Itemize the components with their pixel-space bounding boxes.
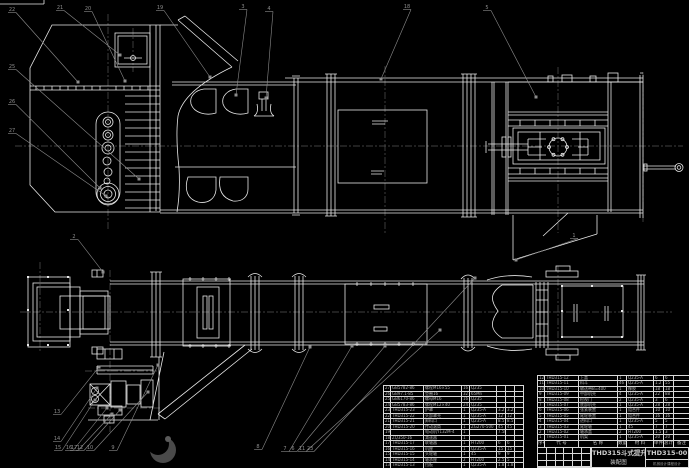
boot-section-plan [487, 266, 623, 360]
leader-line [61, 367, 99, 415]
leader-dot [235, 94, 238, 97]
leader-line [297, 346, 385, 452]
balloon-label: 15 [55, 445, 61, 451]
leader-dot [77, 81, 80, 84]
balloon-label: 3 [241, 4, 244, 10]
cad-drawing-canvas: 2221201934185252627211314151617121098761… [0, 0, 689, 468]
balloon-label: 1 [572, 233, 575, 239]
bom-cell: 1.8 [497, 463, 506, 468]
walkway [30, 86, 160, 90]
take-up-screw-rod [643, 166, 676, 169]
drive-unit-plan [88, 349, 164, 423]
leader-line [164, 11, 210, 78]
bolt-fitting [254, 92, 274, 116]
leader-dot [105, 195, 108, 198]
bom-cell: 13 [384, 463, 391, 468]
bom-cell: 1.8 [506, 463, 515, 468]
inspection-door-plan-2 [345, 282, 427, 346]
leader-dot [94, 399, 97, 402]
leader-line [92, 12, 125, 82]
balloon-label: 4 [267, 6, 270, 12]
signature-cell [582, 461, 591, 467]
balloon-label: 11 [299, 446, 305, 452]
boot-outlet-chute [513, 213, 597, 260]
bom-table-right: 12THD315-12上盖1Q235-A6611THD315-11料斗46Q23… [537, 375, 689, 441]
bom-cell: 挡板 [424, 463, 462, 468]
ink-stamp [147, 433, 176, 463]
balloon-label: 13 [54, 409, 60, 415]
leader-dot [96, 387, 99, 390]
bom-cell: 1 [462, 463, 470, 468]
upper-view [0, 0, 683, 260]
leader-dot [157, 364, 160, 367]
leader-dot [515, 259, 518, 262]
balloon-label: 14 [54, 436, 60, 442]
casing-plan [110, 281, 644, 345]
signature-grid [538, 448, 591, 467]
leader-dot [309, 346, 312, 349]
leader-dot [384, 345, 387, 348]
leader-line [289, 346, 352, 452]
leader-dot [351, 345, 354, 348]
drawing-number-cell: THD315-00 机械设计课程设计 [646, 448, 688, 467]
leader-line [262, 347, 310, 450]
balloon-label: 27 [9, 128, 15, 134]
leader-dot [124, 80, 127, 83]
leader-line [62, 400, 95, 451]
balloon-label: 22 [9, 7, 15, 13]
balloon-label: 2 [72, 234, 75, 240]
leader-dot [474, 277, 477, 280]
balloon-label: 6 [291, 446, 294, 452]
leader-line [16, 13, 78, 83]
leader-line [516, 239, 578, 261]
leader-line [64, 11, 120, 56]
leader-dot [102, 271, 105, 274]
drawing-footer-note: 机械设计课程设计 [646, 460, 688, 468]
leader-dot [106, 407, 109, 410]
bom-row: 13THD315-13挡板1Q235-A1.81.8 [384, 463, 524, 468]
section-flanges [292, 74, 477, 217]
inspection-door-elevation [338, 110, 427, 183]
signature-cell [573, 461, 582, 467]
leader-line [61, 388, 97, 442]
balloon-label: 5 [485, 5, 488, 11]
balloon-label: 8 [256, 444, 259, 450]
drawing-title: THD315斗式提升机 [592, 448, 645, 459]
casing-lines [160, 25, 643, 213]
leader-dot [99, 187, 102, 190]
balloon-label: 26 [9, 99, 15, 105]
balloon-label: 25 [9, 64, 15, 70]
leader-dot [209, 76, 212, 79]
signature-cell [564, 461, 573, 467]
leader-dot [119, 409, 122, 412]
signature-cell [556, 461, 565, 467]
balloon-label: 19 [157, 5, 163, 11]
balloon-label: 9 [111, 445, 114, 451]
leader-line [491, 11, 536, 98]
bom-cell: Q235-A [470, 463, 497, 468]
bom-cell: THD315-13 [391, 463, 424, 468]
bom-table-left: 27GB5782-86螺栓M16×5516Q23526GB97.1-85垫圈16… [383, 385, 524, 468]
balloon-label: 10 [87, 445, 93, 451]
inspection-door-plan-1 [183, 277, 231, 348]
signature-cell [547, 461, 556, 467]
sheet-frame-corner [0, 0, 44, 4]
centerlines [15, 14, 683, 432]
balloon-label: 23 [307, 446, 313, 452]
drawing-title-cell: THD315斗式提升机 装配图 [591, 448, 646, 467]
leader-dot [265, 97, 268, 100]
leader-dot [380, 78, 383, 81]
balloon-label: 21 [57, 5, 63, 11]
title-block: THD315斗式提升机 装配图 THD315-00 机械设计课程设计 [537, 447, 689, 468]
leader-dot [111, 413, 114, 416]
balloon-label: 20 [85, 6, 91, 12]
balloon-label: 12 [77, 445, 83, 451]
leader-dot [98, 366, 101, 369]
leader-dot [535, 96, 538, 99]
drawing-subtitle: 装配图 [592, 459, 645, 468]
boot-section [486, 73, 683, 260]
leader-dot [147, 391, 150, 394]
leader-dot [119, 54, 122, 57]
drawing-number: THD315-00 [646, 448, 688, 460]
bom-cell [515, 463, 524, 468]
leader-dot [138, 178, 141, 181]
balloon-label: 18 [404, 4, 410, 10]
leader-dot [439, 329, 442, 332]
feed-hopper-plan [158, 345, 252, 419]
head-top-box [115, 33, 150, 67]
leader-line [381, 10, 411, 80]
balloon-label: 7 [283, 446, 286, 452]
signature-cell [538, 461, 547, 467]
leader-line [78, 240, 103, 273]
leader-line [16, 134, 106, 197]
